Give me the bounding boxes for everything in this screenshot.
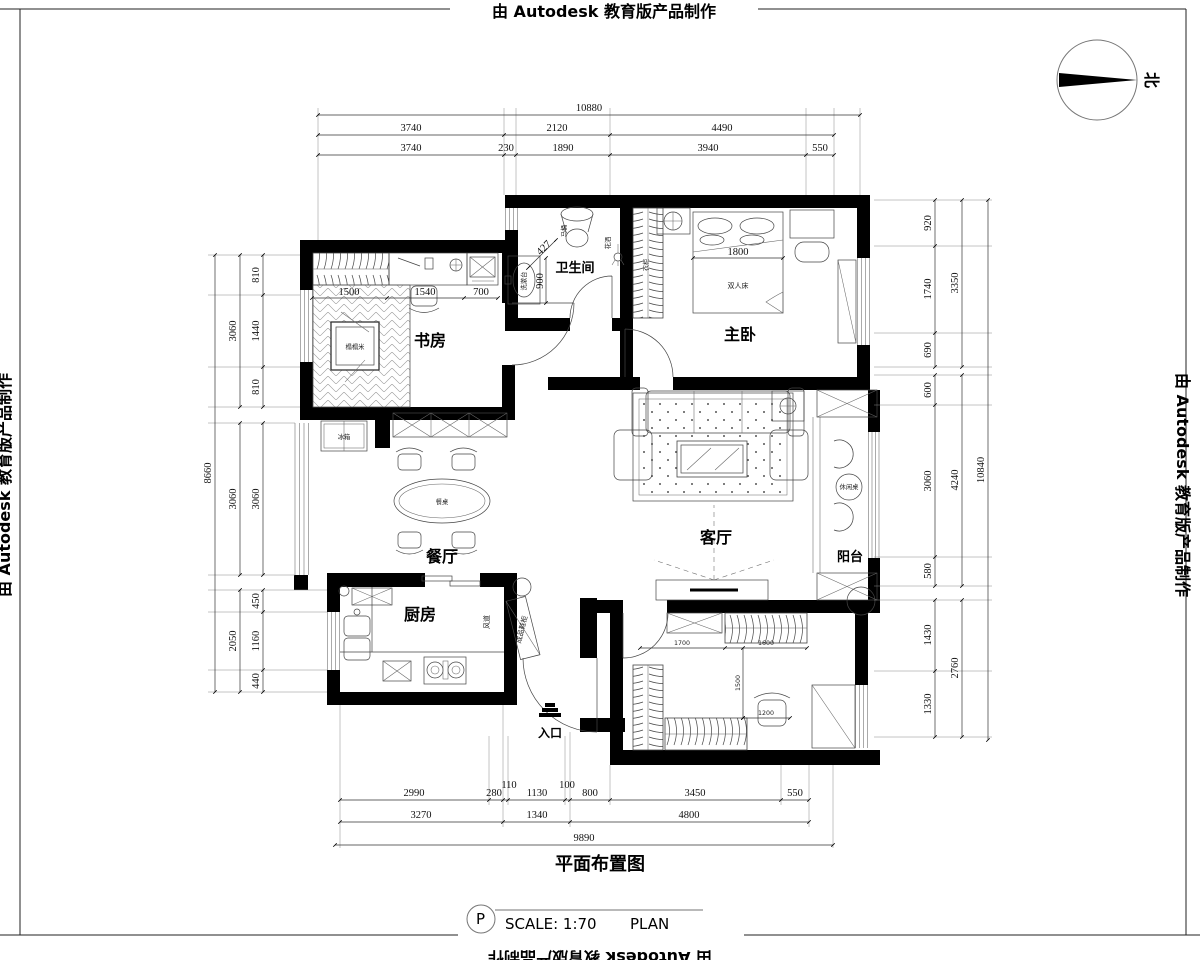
- dim: 600: [923, 382, 934, 398]
- casement-window-master: [838, 260, 856, 343]
- tv-cabinet: [654, 505, 774, 600]
- cad-drawing-page: 由 Autodesk 教育版产品制作 由 Autodesk 教育版产品制作 由 …: [0, 0, 1200, 960]
- room2-dims: 1700 1600 1500 1200: [640, 640, 807, 718]
- flue-boxes: [393, 390, 877, 600]
- dim: 1430: [923, 625, 934, 646]
- dim: 100: [559, 780, 575, 791]
- study-furniture: 榻榻米: [313, 253, 498, 407]
- room2-furniture: 1700 1600 1500 1200: [633, 613, 807, 750]
- dim: 10880: [576, 103, 602, 114]
- dim: 1890: [553, 143, 574, 154]
- north-arrow: 北: [1057, 40, 1161, 120]
- dim: 920: [923, 215, 934, 231]
- room-label-study: 书房: [414, 331, 446, 350]
- room-label-master-bedroom: 主卧: [724, 325, 756, 344]
- dim: 3060: [228, 321, 239, 342]
- dim: 810: [251, 379, 262, 395]
- dim: 810: [251, 267, 262, 283]
- dim: 10840: [976, 457, 987, 483]
- dining-table-label: 餐桌: [436, 497, 449, 506]
- border-text-left: 由 Autodesk 教育版产品制作: [0, 373, 14, 597]
- double-bed-label: 双人床: [728, 281, 749, 290]
- title-block: 平面布置图 P SCALE: 1:70 PLAN: [467, 853, 703, 933]
- dim: 580: [923, 563, 934, 579]
- dim: 3940: [698, 143, 719, 154]
- dim: 4240: [950, 470, 961, 491]
- dimensions-right: 920 1740 690 600 3060 580 1430 1330 3350…: [874, 200, 992, 740]
- room-label-dining: 餐厅: [425, 547, 458, 566]
- title-scale: SCALE: 1:70: [505, 915, 597, 933]
- dim: 3270: [411, 810, 432, 821]
- shower-label: 花洒: [603, 236, 612, 249]
- basin-label: 洗漱台: [519, 272, 528, 291]
- toilet-icon: 马桶: [559, 207, 593, 247]
- dim: 427: [535, 239, 554, 258]
- room-label-living: 客厅: [700, 528, 732, 547]
- stove: [424, 657, 466, 684]
- dim: 8660: [203, 463, 214, 484]
- dim: 550: [787, 788, 803, 799]
- dim: 1700: [674, 640, 690, 647]
- dim: 2120: [547, 123, 568, 134]
- duct-label: 风道: [482, 615, 491, 629]
- border-text-right: 由 Autodesk 教育版产品制作: [1173, 373, 1192, 597]
- dim: 800: [582, 788, 598, 799]
- dim: 230: [498, 143, 514, 154]
- toilet-label: 马桶: [559, 225, 568, 238]
- tatami-area: 榻榻米: [313, 285, 410, 407]
- entry-area: 成品鞋柜 风道 入口: [482, 578, 562, 740]
- coffee-table: [677, 441, 747, 477]
- kitchen-sliding-door: [422, 576, 480, 586]
- dim: 550: [812, 143, 828, 154]
- dim: 450: [251, 593, 262, 609]
- dim: 3740: [401, 123, 422, 134]
- dim: 1160: [251, 631, 262, 652]
- room-label-balcony: 阳台: [837, 549, 863, 565]
- dim: 1130: [527, 788, 548, 799]
- entrance-label: 入口: [538, 726, 562, 740]
- wardrobe-master: 衣柜: [633, 208, 663, 318]
- dim: 1800: [728, 247, 749, 258]
- dim: 2990: [404, 788, 425, 799]
- wardrobe-label: 衣柜: [641, 259, 650, 272]
- room-label-kitchen: 厨房: [404, 605, 436, 624]
- living-room-furniture: [614, 388, 808, 600]
- title-tag: P: [476, 910, 485, 928]
- dim: 3060: [228, 489, 239, 510]
- dim: 700: [473, 287, 489, 298]
- room-label-bathroom: 卫生间: [555, 260, 594, 276]
- dim: 1340: [527, 810, 548, 821]
- dim: 1500: [735, 675, 742, 691]
- dim: 4800: [679, 810, 700, 821]
- tatami-label: 榻榻米: [346, 342, 366, 351]
- title-type: PLAN: [630, 915, 669, 933]
- dim: 3450: [685, 788, 706, 799]
- dim: 3060: [923, 471, 934, 492]
- tv-icon: [467, 253, 498, 285]
- dim: 4490: [712, 123, 733, 134]
- dim: 3350: [950, 273, 961, 294]
- master-bedroom-furniture: 衣柜 双人床: [633, 208, 834, 318]
- casement-window-room2: [812, 685, 855, 748]
- kitchen-furniture: [339, 586, 504, 684]
- dim: 1200: [758, 710, 774, 717]
- dim: 900: [535, 273, 546, 289]
- border-frame: 由 Autodesk 教育版产品制作 由 Autodesk 教育版产品制作 由 …: [0, 2, 1200, 960]
- dim: 1330: [923, 694, 934, 715]
- dim: 2760: [950, 658, 961, 679]
- dining-table: 餐桌: [394, 479, 490, 523]
- dim: 110: [501, 780, 516, 791]
- dimensions-top: 10880 3740 2120 4490 3740 230 1890 3940 …: [318, 103, 860, 240]
- dim: 9890: [574, 833, 595, 844]
- north-arrow-pointer: [1059, 73, 1137, 87]
- dim: 3740: [401, 143, 422, 154]
- dim: 2050: [228, 631, 239, 652]
- fridge: 冰箱: [321, 421, 367, 451]
- double-bed: 双人床: [693, 212, 783, 313]
- drawing-title: 平面布置图: [555, 853, 645, 875]
- dim: 440: [251, 673, 262, 689]
- dim: 1740: [923, 279, 934, 300]
- fridge-label: 冰箱: [338, 432, 351, 441]
- dim: 1500: [339, 287, 360, 298]
- dim: 690: [923, 342, 934, 358]
- dim: 1600: [758, 640, 774, 647]
- leisure-table-label: 休闲桌: [840, 482, 860, 491]
- dim: 1540: [415, 287, 436, 298]
- dim: 1440: [251, 321, 262, 342]
- north-label: 北: [1142, 72, 1161, 88]
- dim: 280: [486, 788, 502, 799]
- border-text-bottom: 由 Autodesk 教育版产品制作: [488, 948, 712, 960]
- floor-plan-canvas: 由 Autodesk 教育版产品制作 由 Autodesk 教育版产品制作 由 …: [0, 0, 1200, 960]
- border-text-top: 由 Autodesk 教育版产品制作: [492, 2, 716, 21]
- bathroom-fixtures: 马桶 洗漱台 花洒: [505, 207, 624, 304]
- entrance-icon: [539, 703, 561, 717]
- dim: 3060: [251, 489, 262, 510]
- doors: [422, 276, 673, 732]
- dining-furniture: 餐桌 冰箱: [321, 421, 490, 554]
